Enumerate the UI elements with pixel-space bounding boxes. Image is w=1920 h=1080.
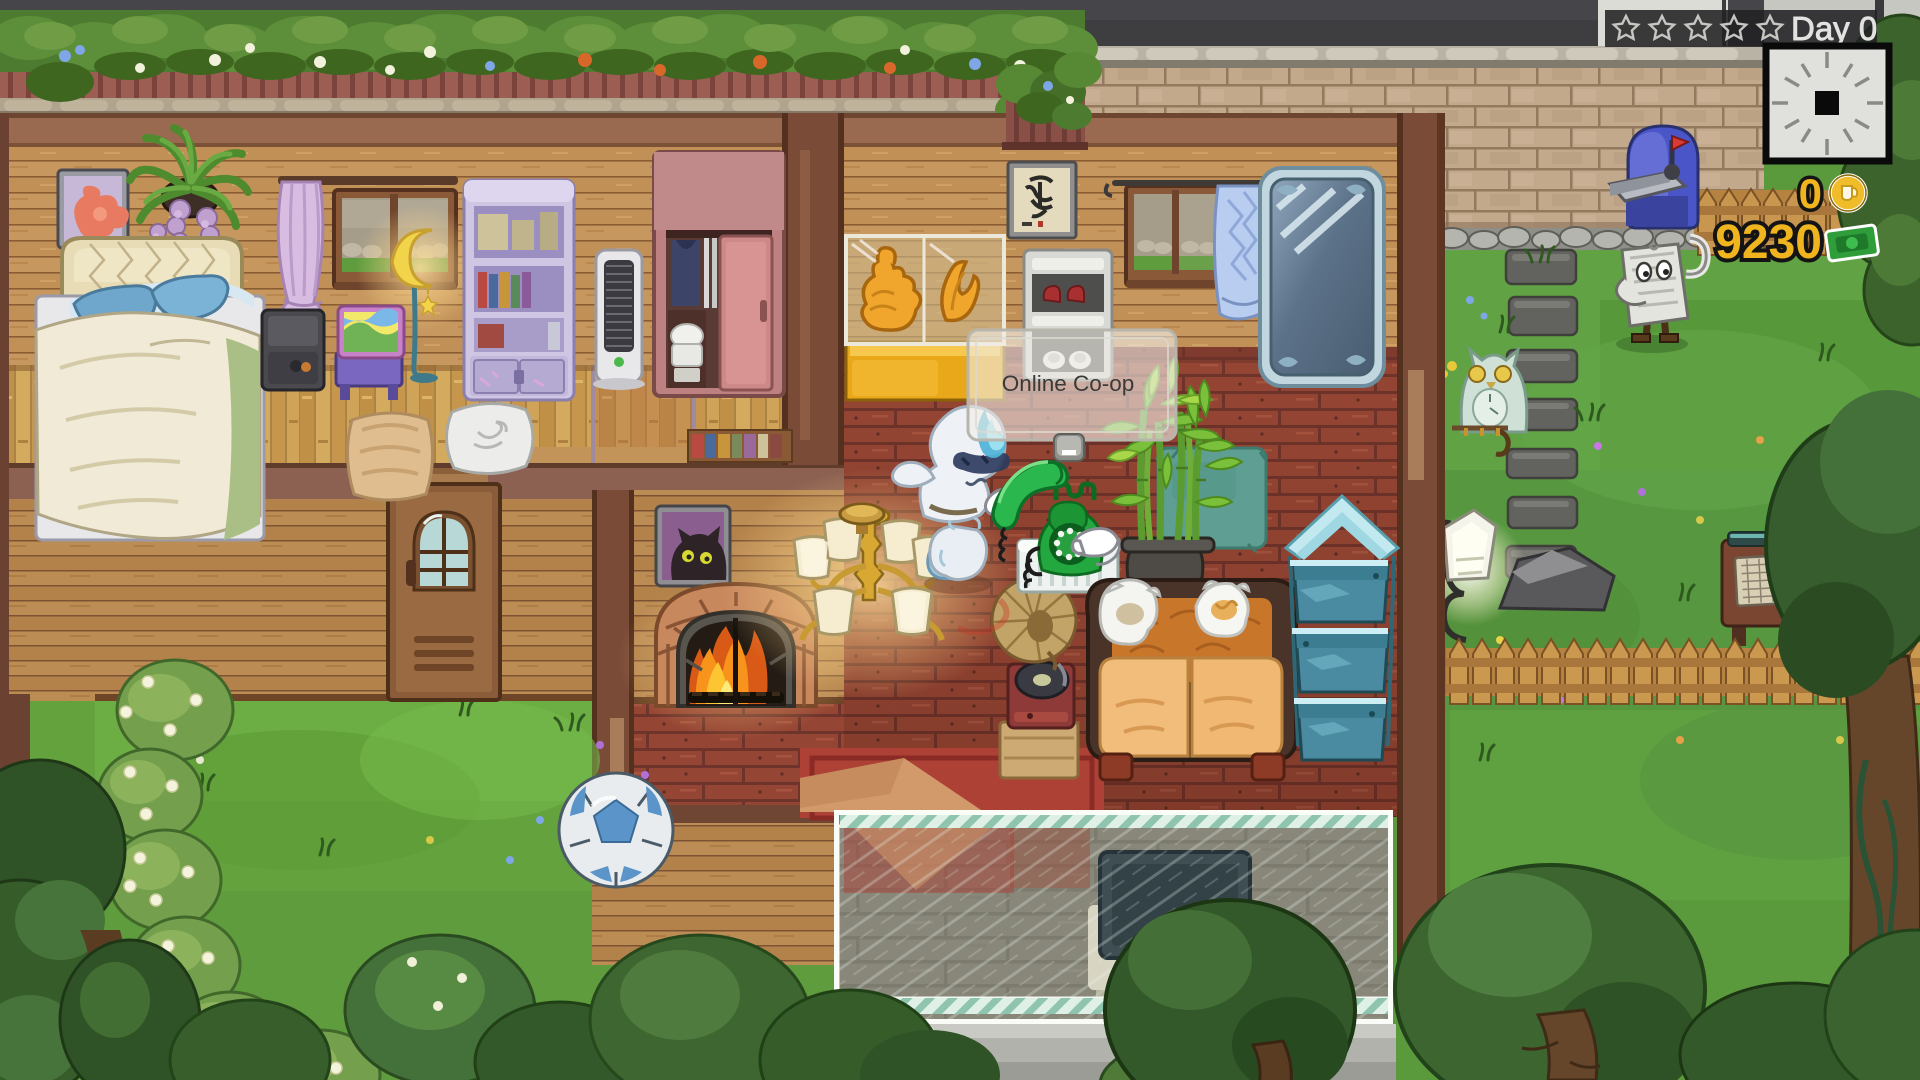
svg-text:Day 0: Day 0	[1791, 10, 1877, 47]
svg-text:0: 0	[1799, 170, 1822, 217]
svg-text:Online Co-op: Online Co-op	[1002, 371, 1135, 396]
svg-text:9230: 9230	[1715, 216, 1822, 269]
